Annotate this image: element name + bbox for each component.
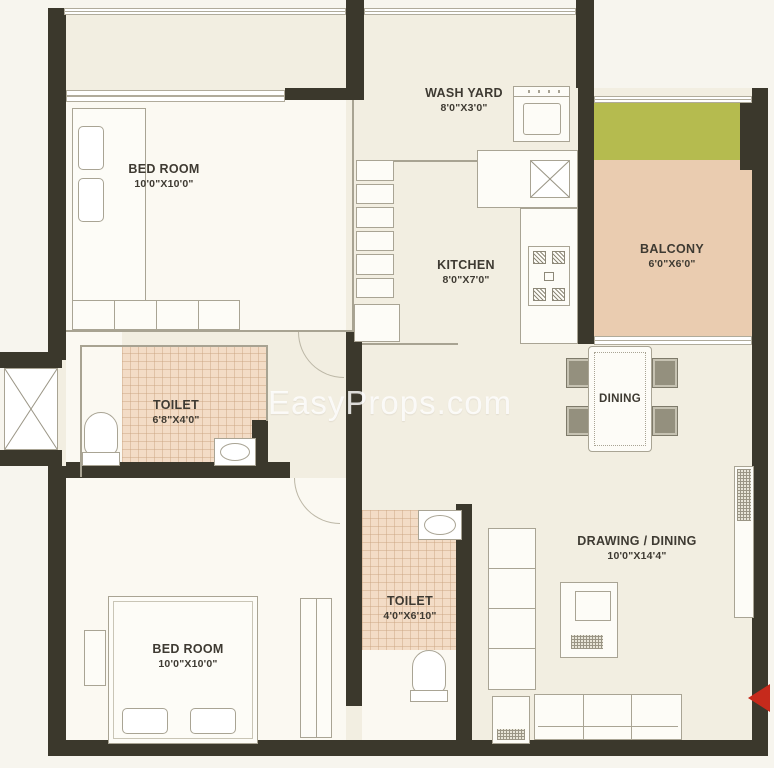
toilet2-name: TOILET <box>383 594 436 608</box>
sofa-cushion <box>489 609 535 649</box>
bed1-pillow-2 <box>78 178 104 222</box>
wall-left-lower <box>48 466 66 744</box>
kitchen-cabinet-low <box>354 304 400 342</box>
toilet1-basin-bowl <box>220 443 250 461</box>
stove-burner <box>552 288 565 301</box>
stove-burner <box>552 251 565 264</box>
toilet2-label: TOILET 4'0"X6'10" <box>383 594 436 622</box>
balcony-dims: 6'0"X6'0" <box>640 258 704 270</box>
toilet1-wc-bowl <box>84 412 118 456</box>
wall-bedroom1-top-right <box>285 88 364 100</box>
sofa-bottom <box>534 694 682 740</box>
window-bedroom1 <box>66 90 285 102</box>
toilet2-wc-bowl <box>412 650 446 694</box>
sofa-bottom-backline <box>538 726 678 727</box>
bedroom1-dims: 10'0"X10'0" <box>128 178 199 190</box>
drawing-label: DRAWING / DINING 10'0"X14'4" <box>577 534 696 562</box>
toilet2-wc-tank <box>410 690 448 702</box>
toilet2-basin <box>418 510 462 540</box>
dining-table: DINING <box>588 346 652 452</box>
toilet2-dims: 4'0"X6'10" <box>383 610 436 622</box>
bed2-pillow-1 <box>122 708 168 734</box>
cabinet-cell <box>356 231 394 252</box>
balcony-planter-strip <box>594 102 752 160</box>
partition-kitchen-bottom <box>362 343 458 345</box>
washyard-name: WASH YARD <box>425 86 503 100</box>
dining-table-inner: DINING <box>594 352 646 446</box>
tv-unit <box>560 582 618 658</box>
kitchen-sink <box>530 160 570 198</box>
kitchen-name: KITCHEN <box>437 258 495 272</box>
toilet1-label: TOILET 6'8"X4'0" <box>152 398 199 426</box>
sofa-cushion <box>489 649 535 689</box>
toilet1-basin <box>214 438 256 466</box>
stove-burner <box>533 288 546 301</box>
stove-burner <box>533 251 546 264</box>
wall-left-upper <box>48 8 66 360</box>
drawing-dims: 10'0"X14'4" <box>577 550 696 562</box>
bedroom1-label: BED ROOM 10'0"X10'0" <box>128 162 199 190</box>
wall-top-divider <box>346 0 364 100</box>
dining-label: DINING <box>599 393 641 405</box>
bed2-pillow-2 <box>190 708 236 734</box>
sofa-cushion <box>489 529 535 569</box>
corner-table-shelf <box>497 729 525 740</box>
kitchen-label: KITCHEN 8'0"X7'0" <box>437 258 495 286</box>
sofa-cushion <box>489 569 535 609</box>
toilet1-name: TOILET <box>152 398 199 412</box>
wall-balcony-right-pier <box>740 96 768 170</box>
shaft-cross-icon <box>5 369 57 449</box>
bedroom1-name: BED ROOM <box>128 162 199 176</box>
bed1-pillow-1 <box>78 126 104 170</box>
bed2-side-table <box>84 630 106 686</box>
kitchen-cabinet-column <box>354 158 396 300</box>
wall-kitchen-balcony-divider <box>578 88 594 344</box>
partition-toilet1-top <box>80 345 268 347</box>
floor-plan: DINING BED ROOM 10'0"X10'0" WASH YARD 8 <box>0 0 774 768</box>
washing-machine-controls <box>514 87 569 97</box>
sofa-left <box>488 528 536 690</box>
bedroom2-name: BED ROOM <box>152 642 223 656</box>
shaft-box <box>4 368 58 450</box>
window-top-left <box>64 8 346 15</box>
kitchen-dims: 8'0"X7'0" <box>437 274 495 286</box>
tv-unit-speaker <box>571 635 603 649</box>
sofa-right-cushion <box>737 469 751 521</box>
tv-unit-top <box>575 591 611 621</box>
cabinet-cell <box>356 184 394 205</box>
wardrobe1 <box>72 300 240 330</box>
balcony-label: BALCONY 6'0"X6'0" <box>640 242 704 270</box>
wall-right <box>752 88 768 740</box>
toilet1-wc-tank <box>82 452 120 466</box>
sofa-right <box>734 466 754 618</box>
drawing-name: DRAWING / DINING <box>577 534 696 548</box>
corner-table <box>492 696 530 744</box>
wall-shaft-top <box>0 352 62 368</box>
dining-chair <box>652 406 678 436</box>
washing-machine-door <box>523 103 561 135</box>
cabinet-cell <box>356 207 394 228</box>
window-balcony-sill <box>594 336 752 345</box>
sofa-cushion <box>632 695 681 739</box>
bedroom2-label: BED ROOM 10'0"X10'0" <box>152 642 223 670</box>
wall-washyard-right <box>576 0 594 88</box>
stove-center-plate <box>544 272 554 281</box>
sofa-cushion <box>535 695 584 739</box>
toilet1-dims: 6'8"X4'0" <box>152 414 199 426</box>
window-balcony-top <box>594 96 752 103</box>
cabinet-cell <box>356 254 394 275</box>
kitchen-stove <box>528 246 570 306</box>
washyard-label: WASH YARD 8'0"X3'0" <box>425 86 503 114</box>
toilet2-basin-bowl <box>424 515 456 535</box>
cabinet-cell <box>356 160 394 181</box>
washyard-dims: 8'0"X3'0" <box>425 102 503 114</box>
wardrobe2 <box>300 598 332 738</box>
sink-cross-icon <box>531 161 569 197</box>
entry-arrow-icon <box>748 684 770 712</box>
washing-machine <box>513 86 570 142</box>
watermark: EasyProps.com <box>268 384 512 422</box>
balcony-name: BALCONY <box>640 242 704 256</box>
sofa-cushion <box>584 695 633 739</box>
dining-chair <box>652 358 678 388</box>
window-top-washyard <box>364 8 576 15</box>
cabinet-cell <box>356 278 394 299</box>
wall-shaft-bottom <box>0 450 62 466</box>
bedroom2-dims: 10'0"X10'0" <box>152 658 223 670</box>
